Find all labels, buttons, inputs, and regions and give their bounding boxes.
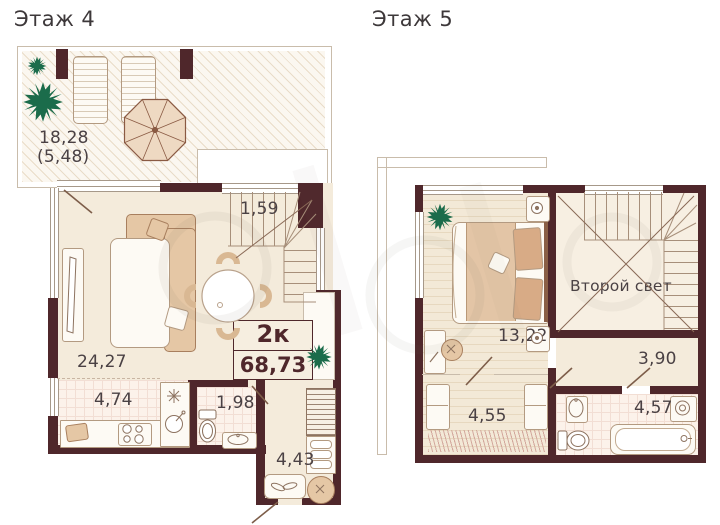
wall [548,368,556,456]
wall [415,455,706,463]
entry-bench [264,474,306,499]
partition-line [494,374,548,375]
window [50,378,59,416]
wardrobe-cabinet [426,384,450,430]
bathroom5-sink [566,396,588,423]
floorplan-canvas: Этаж 4 Этаж 5 18,28 (5,48) 1,59 [0,0,720,525]
sun-lounger [121,56,156,124]
sun-lounger [73,56,108,124]
hall-area-label: 4,43 [276,450,315,470]
unit-total-area-label: 68,73 [234,351,312,380]
hanging-rail [428,430,546,452]
washing-machine [670,396,697,422]
partition-line [422,374,460,375]
stairs-area-label: 1,59 [240,199,279,219]
bathroom-vanity [222,432,257,449]
stairs-flight [584,192,664,240]
bed-headboard [544,222,548,322]
desk-pouf [441,339,463,361]
bedroom-area-label: 13,22 [498,326,548,346]
bathroom5-area-label: 4,57 [634,398,673,418]
shoe [310,440,332,449]
cabinet-divider [524,405,546,406]
wall [160,183,222,192]
wall [548,330,706,338]
window [422,185,523,195]
nightstand [526,196,550,222]
stove [118,423,152,446]
roof-outline [377,157,547,168]
unit-rooms-label: 2к [234,321,312,351]
wall [415,185,423,212]
unit-summary-box: 2к 68,73 [233,320,313,380]
wardrobe-cabinet [524,384,548,430]
floor5-title: Этаж 5 [372,7,453,31]
corridor-floor [556,338,698,386]
wall [188,380,248,387]
cabinet-divider [426,405,448,406]
terrace-area-reduced-label: (5,48) [37,147,89,167]
wall [650,386,698,394]
wall [48,298,58,378]
wardrobe-area-label: 4,55 [468,406,507,426]
bed-pillow [513,277,544,321]
sofa-seat [110,238,170,348]
corridor-area-label: 3,90 [638,349,677,369]
bed-pillow [513,227,544,271]
wall [298,183,323,228]
terrace-canopy [197,149,328,184]
kitchen-counter-column [160,382,190,447]
kitchen-boundary-line [57,378,160,379]
pouf [307,476,335,504]
cutting-board [65,423,89,443]
wall [256,498,278,505]
bathroom-area-label: 1,98 [216,393,255,413]
bed-blanket [466,223,516,321]
wall [180,49,193,79]
tv-stand [62,248,84,342]
wall [56,49,68,79]
window [57,180,161,192]
bathtub-inner [615,428,691,451]
floor4-title: Этаж 4 [14,7,95,31]
roof-outline [377,157,387,455]
wall [556,386,622,394]
window [50,188,59,298]
terrace-area-label: 18,28 [39,128,89,148]
kitchen-area-label: 4,74 [94,390,133,410]
window [316,228,325,290]
living-area-label: 24,27 [77,352,127,372]
wardrobe-shelves [306,388,336,436]
window [415,212,424,298]
void-label: Второй свет [570,277,672,295]
wall [698,185,706,463]
wall [415,298,423,463]
